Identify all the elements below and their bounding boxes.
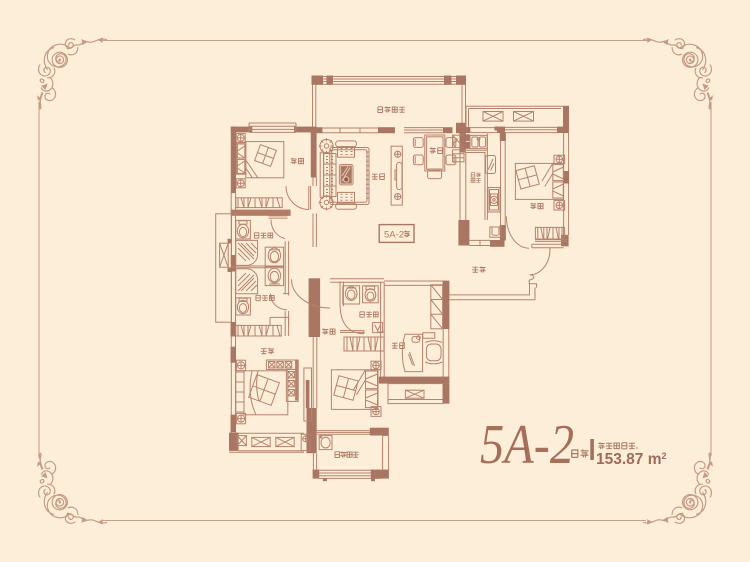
svg-text:5A-2: 5A-2 <box>480 414 574 476</box>
svg-text:5A-2: 5A-2 <box>384 230 404 241</box>
svg-text:153.87 m2: 153.87 m2 <box>596 451 667 468</box>
